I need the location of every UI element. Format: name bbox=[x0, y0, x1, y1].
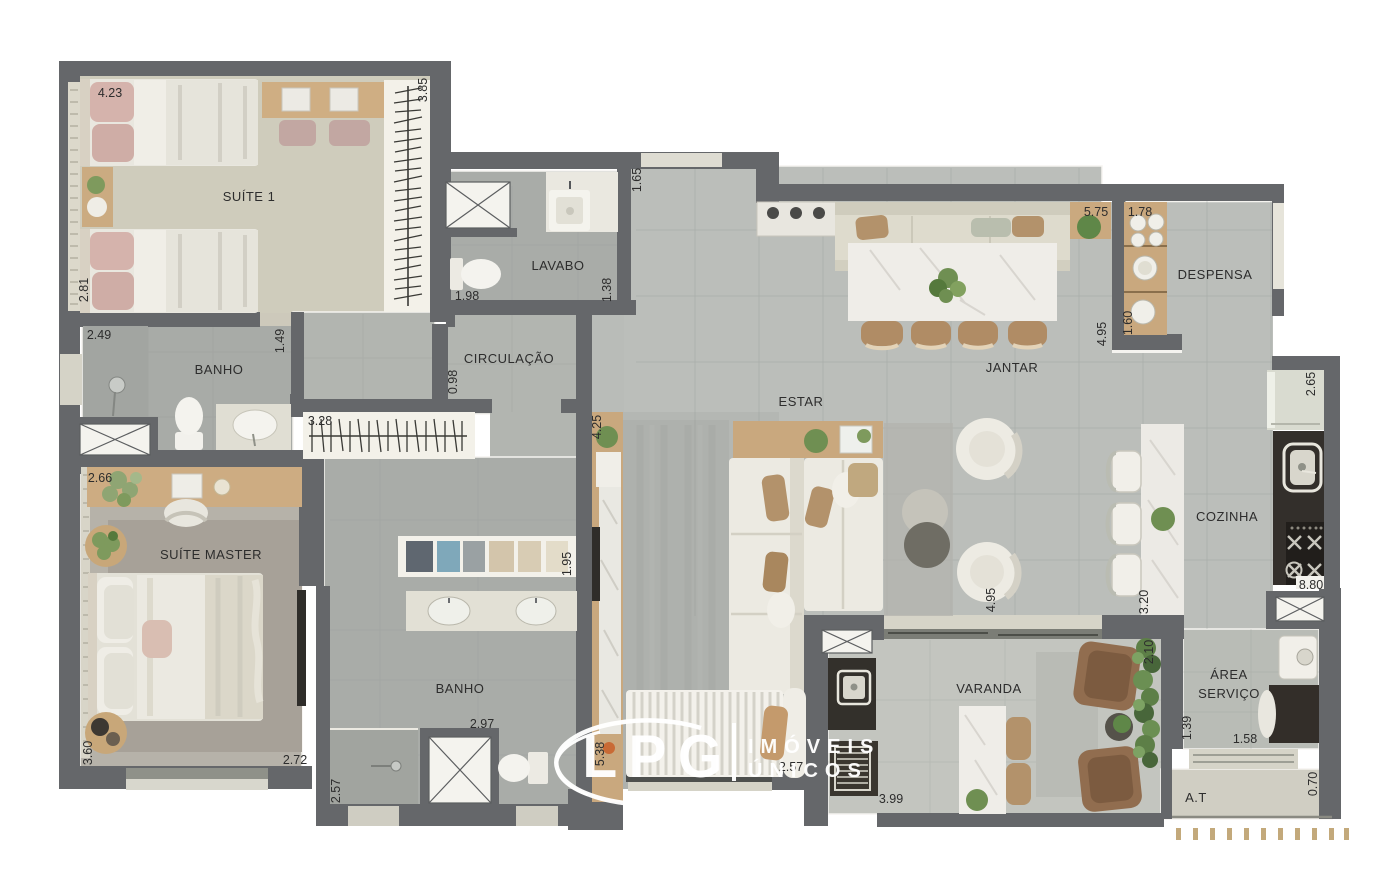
svg-text:2.97: 2.97 bbox=[470, 717, 494, 731]
svg-text:1.39: 1.39 bbox=[1180, 716, 1194, 740]
svg-text:2.57: 2.57 bbox=[329, 779, 343, 803]
svg-text:2.10: 2.10 bbox=[1142, 640, 1156, 664]
svg-text:3.99: 3.99 bbox=[879, 792, 903, 806]
svg-text:SUÍTE MASTER: SUÍTE MASTER bbox=[160, 547, 262, 562]
svg-text:1.95: 1.95 bbox=[560, 552, 574, 576]
svg-text:COZINHA: COZINHA bbox=[1196, 509, 1258, 524]
svg-text:2.81: 2.81 bbox=[77, 278, 91, 302]
svg-text:SERVIÇO: SERVIÇO bbox=[1198, 686, 1260, 701]
svg-text:BANHO: BANHO bbox=[436, 681, 485, 696]
svg-text:8.80: 8.80 bbox=[1299, 578, 1323, 592]
svg-text:4.23: 4.23 bbox=[98, 86, 122, 100]
svg-text:3.20: 3.20 bbox=[1137, 590, 1151, 614]
svg-text:1.49: 1.49 bbox=[273, 329, 287, 353]
svg-text:ÁREA: ÁREA bbox=[1210, 667, 1247, 682]
svg-text:3.60: 3.60 bbox=[81, 741, 95, 765]
svg-text:0.98: 0.98 bbox=[446, 370, 460, 394]
svg-text:1.38: 1.38 bbox=[600, 278, 614, 302]
svg-text:DESPENSA: DESPENSA bbox=[1178, 267, 1253, 282]
svg-text:3.85: 3.85 bbox=[416, 78, 430, 102]
svg-text:4.95: 4.95 bbox=[984, 588, 998, 612]
svg-text:0.70: 0.70 bbox=[1306, 772, 1320, 796]
svg-text:2.72: 2.72 bbox=[283, 753, 307, 767]
svg-text:1.58: 1.58 bbox=[1233, 732, 1257, 746]
svg-text:JANTAR: JANTAR bbox=[986, 360, 1039, 375]
svg-text:2.49: 2.49 bbox=[87, 328, 111, 342]
svg-text:1.65: 1.65 bbox=[630, 168, 644, 192]
svg-text:A.T: A.T bbox=[1185, 790, 1207, 805]
svg-text:LPG: LPG bbox=[582, 724, 733, 791]
svg-text:VARANDA: VARANDA bbox=[956, 681, 1021, 696]
svg-text:ESTAR: ESTAR bbox=[779, 394, 824, 409]
svg-text:4.95: 4.95 bbox=[1095, 322, 1109, 346]
svg-text:LAVABO: LAVABO bbox=[531, 258, 584, 273]
svg-text:3.28: 3.28 bbox=[308, 414, 332, 428]
svg-text:BANHO: BANHO bbox=[195, 362, 244, 377]
svg-text:ÚNICOS: ÚNICOS bbox=[748, 758, 868, 782]
svg-text:CIRCULAÇÃO: CIRCULAÇÃO bbox=[464, 351, 554, 366]
svg-text:2.66: 2.66 bbox=[88, 471, 112, 485]
svg-text:SUÍTE 1: SUÍTE 1 bbox=[223, 189, 276, 204]
svg-text:5.75: 5.75 bbox=[1084, 205, 1108, 219]
svg-text:IMÓVEIS: IMÓVEIS bbox=[748, 734, 880, 758]
svg-text:1.98: 1.98 bbox=[455, 289, 479, 303]
svg-text:4.25: 4.25 bbox=[590, 415, 604, 439]
svg-text:2.65: 2.65 bbox=[1304, 372, 1318, 396]
svg-text:1.78: 1.78 bbox=[1128, 205, 1152, 219]
svg-text:1.60: 1.60 bbox=[1121, 311, 1135, 335]
